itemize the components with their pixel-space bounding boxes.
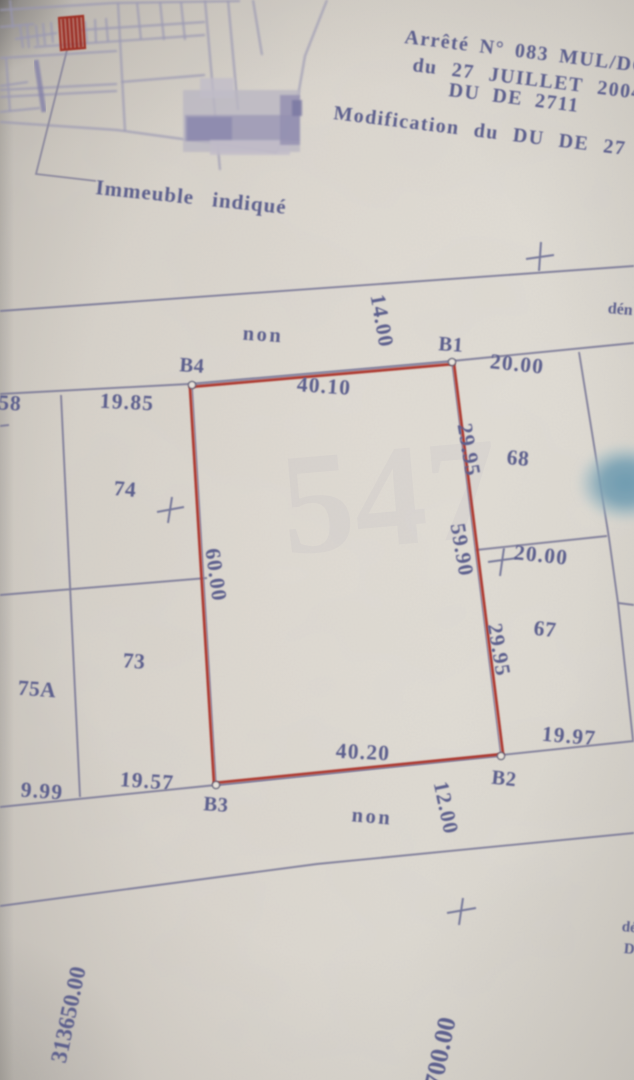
svg-text:Di: Di <box>623 941 634 958</box>
svg-text:B2: B2 <box>490 767 517 791</box>
svg-text:B1: B1 <box>438 333 464 357</box>
svg-text:19.97: 19.97 <box>541 722 597 751</box>
svg-text:non: non <box>242 323 284 348</box>
svg-text:67: 67 <box>533 616 558 642</box>
svg-text:40.10: 40.10 <box>296 372 352 400</box>
svg-text:73: 73 <box>122 648 146 674</box>
svg-text:dén: dén <box>607 300 633 319</box>
svg-text:58: 58 <box>0 390 22 415</box>
svg-text:19.57: 19.57 <box>119 767 175 795</box>
svg-text:75A: 75A <box>17 676 57 703</box>
svg-text:74: 74 <box>113 476 138 502</box>
svg-text:40.20: 40.20 <box>335 739 391 766</box>
svg-text:dé: dé <box>621 919 634 936</box>
svg-text:non: non <box>351 804 393 829</box>
svg-text:B4: B4 <box>179 354 205 378</box>
svg-text:9.99: 9.99 <box>20 778 64 805</box>
svg-text:19.85: 19.85 <box>99 389 155 416</box>
svg-text:68: 68 <box>506 445 531 471</box>
svg-text:B3: B3 <box>203 793 229 817</box>
